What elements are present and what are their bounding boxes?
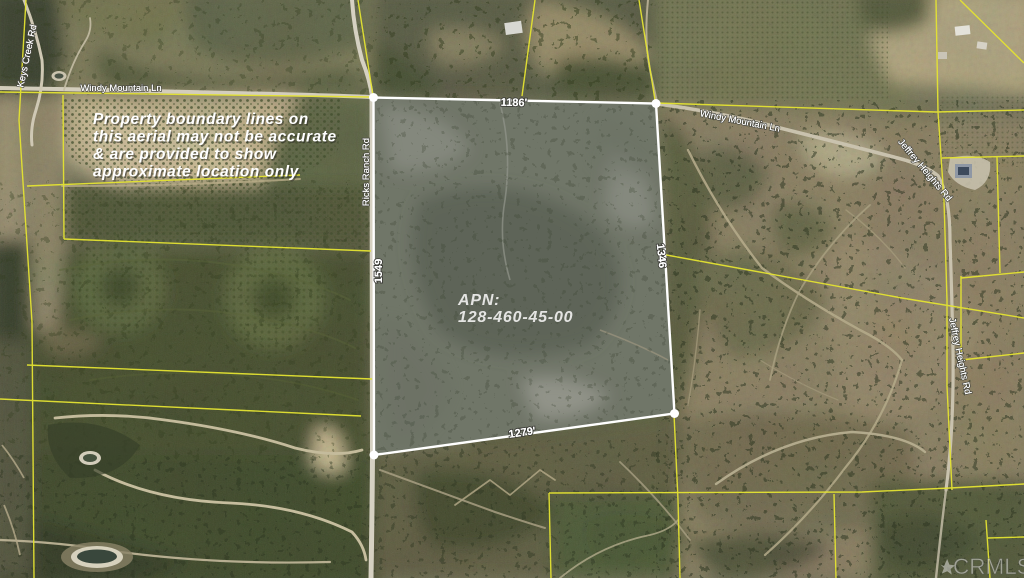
svg-text:approximate location only: approximate location only [93, 164, 300, 181]
svg-text:this aerial may not be accurat: this aerial may not be accurate [93, 129, 337, 146]
svg-text:Ricks Ranch Rd: Ricks Ranch Rd [361, 138, 372, 206]
svg-text:Property boundary lines on: Property boundary lines on [93, 111, 309, 128]
svg-text:1346: 1346 [654, 243, 668, 269]
svg-text:1549: 1549 [373, 259, 385, 283]
svg-text:& are provided to show: & are provided to show [93, 146, 277, 163]
svg-text:Windy Mountain Ln: Windy Mountain Ln [80, 83, 161, 94]
svg-text:APN:: APN: [457, 292, 500, 309]
svg-text:CRMLS: CRMLS [953, 554, 1024, 578]
svg-text:128-460-45-00: 128-460-45-00 [458, 309, 573, 326]
svg-text:1186': 1186' [501, 97, 528, 109]
